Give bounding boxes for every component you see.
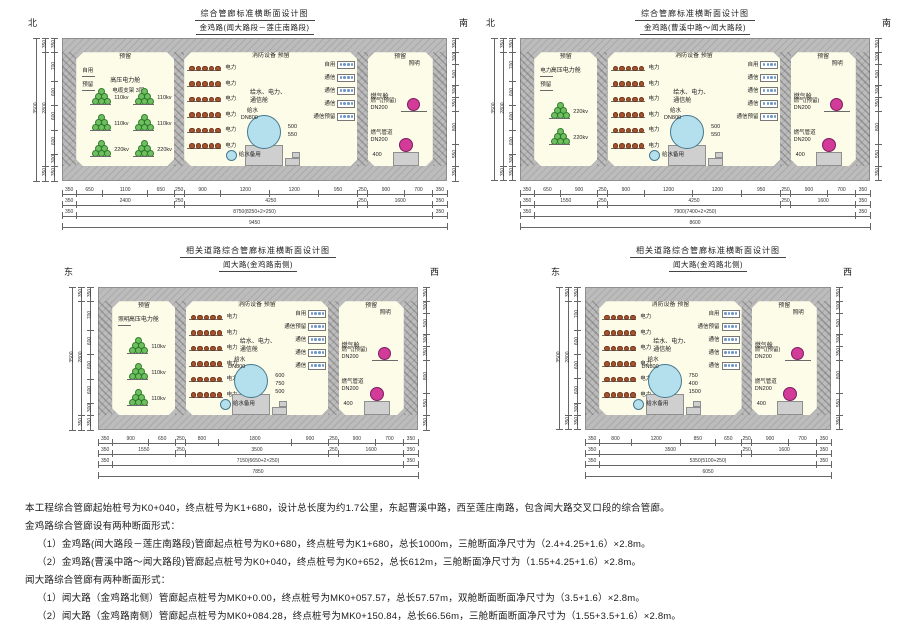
- power-cable-icon: [604, 392, 610, 398]
- dim-value: 350: [585, 447, 599, 453]
- comm-cable-icon: [735, 325, 738, 328]
- power-cable-icon: [215, 81, 221, 87]
- cable-voltage-label: 110kv: [151, 370, 165, 377]
- water-spare-label: 给水备用: [662, 152, 684, 159]
- dim-value: 250: [328, 436, 338, 442]
- dim-line: [62, 227, 447, 228]
- comm-cable-icon: [340, 115, 343, 118]
- dim-tick: [870, 190, 871, 197]
- dim-value: 2800: [78, 344, 84, 370]
- dim-vtick: [491, 38, 498, 39]
- power-cable-icon: [197, 346, 203, 352]
- comm-cable-icon: [735, 364, 738, 367]
- dim-vtick: [42, 52, 49, 53]
- cabin-name-label: 通信舱: [653, 347, 671, 355]
- cabin-hv: 预留照明高压电力舱110kv110kv110kv: [112, 301, 175, 415]
- dim-row: 3507150(6650+2×250)350: [98, 457, 418, 467]
- maintenance-step: [686, 407, 701, 415]
- dim-tick: [831, 472, 832, 479]
- dim-tick: [831, 450, 832, 457]
- gas-shelf-bracket: [401, 111, 427, 112]
- cabin-reserved-label: 预留: [76, 54, 174, 62]
- dim-line: [520, 205, 870, 206]
- dim-vtick: [875, 180, 882, 181]
- gas-pipe-plinth: [364, 401, 390, 415]
- notes-section: 本工程综合管廊起始桩号为K0+040，终点桩号为K1+680，设计总长度为约1.…: [25, 500, 895, 626]
- dim-line: [98, 465, 418, 466]
- compass-north-label: 北: [486, 16, 495, 29]
- comm-cable-icon: [347, 89, 350, 92]
- comm-tray-icon: [722, 310, 740, 318]
- dim-vtick: [491, 180, 498, 181]
- comm-tray-icon: [308, 323, 326, 331]
- water-main-label: 给水: [205, 357, 245, 364]
- dim-value: 2800: [565, 344, 571, 370]
- note-line: （1）闻大路（金鸡路北侧）管廊起点桩号为MK0+0.00，终点桩号为MK0+05…: [25, 590, 895, 608]
- shelf-bracket: [540, 76, 553, 77]
- gas-pipe-plinth: [816, 152, 842, 166]
- comm-cable-icon: [770, 102, 773, 105]
- gas-reserved-label: DN200: [371, 105, 388, 112]
- power-cable-icon: [624, 392, 630, 398]
- note-line: （2）闻大路（金鸡路南侧）管廊起点桩号为MK0+084.28，终点桩号为MK0+…: [25, 608, 895, 626]
- dim-value: 600: [574, 328, 580, 354]
- power-cable-icon: [209, 81, 215, 87]
- dim-value: 900: [112, 436, 149, 442]
- comm-cable-icon: [318, 338, 321, 341]
- dim-value: 350: [817, 447, 831, 453]
- dim-tick: [447, 201, 448, 208]
- comm-cable-label: 自用: [732, 62, 758, 69]
- cable-bracket: [133, 156, 154, 157]
- gas-shelf-bracket: [372, 360, 398, 361]
- water-spare-pipe: [220, 399, 231, 410]
- compass-west-label: 西: [843, 265, 852, 278]
- compass-west-label: 西: [430, 265, 439, 278]
- comm-tray-icon: [760, 61, 778, 69]
- inner-dim-value: 500: [275, 389, 284, 396]
- power-cable-icon: [202, 128, 208, 134]
- dim-value: 350: [98, 458, 112, 464]
- comm-cable-label: 自用: [309, 62, 335, 69]
- gas-main-pipe: [783, 387, 797, 401]
- cabin-name-label: 给水、电力、: [653, 339, 689, 347]
- comm-cable-icon: [314, 351, 317, 354]
- tunnel-wall: [856, 52, 870, 166]
- comm-cable-label: 通信: [732, 88, 758, 95]
- cabin-util: 消防设备 预留电力电力电力电力电力电力给水、电力、通信舱自用通信预留通信通信通信…: [599, 301, 741, 415]
- comm-tray-icon: [760, 74, 778, 82]
- power-cable-icon: [202, 66, 208, 72]
- dim-value: 1600: [791, 198, 856, 204]
- power-cable-icon: [611, 361, 617, 367]
- comm-tray-icon: [722, 362, 740, 370]
- cabin-name-label: 给水、电力、: [673, 90, 709, 98]
- compass-south-label: 南: [459, 16, 468, 29]
- cabin-name-label: 高压电力舱: [112, 317, 175, 325]
- power-cable-label: 电力: [649, 127, 660, 134]
- power-cable-icon: [619, 97, 625, 103]
- comm-cable-label: 通信: [694, 337, 720, 344]
- comm-cable-icon: [731, 312, 734, 315]
- dim-vtick: [42, 181, 49, 182]
- comm-cable-icon: [731, 351, 734, 354]
- water-main-label: DN800: [205, 364, 245, 371]
- gas-main-label: 燃气管道: [371, 130, 393, 137]
- dim-vtick: [836, 429, 843, 430]
- power-cable-icon: [189, 128, 195, 134]
- comm-cable-icon: [770, 89, 773, 92]
- comm-tray-icon: [722, 336, 740, 344]
- dim-line: [98, 443, 418, 444]
- dim-line: [98, 454, 418, 455]
- power-cable-icon: [210, 315, 216, 321]
- dim-vtick: [452, 111, 459, 112]
- power-cable-icon: [197, 330, 203, 336]
- comm-cable-icon: [770, 76, 773, 79]
- comm-cable-icon: [763, 76, 766, 79]
- power-cable-icon: [202, 143, 208, 149]
- power-cable-icon: [191, 392, 197, 398]
- dim-value: 850: [681, 436, 716, 442]
- dim-vtick: [500, 180, 507, 181]
- power-cable-icon: [197, 315, 203, 321]
- comm-tray-icon: [722, 323, 740, 331]
- dim-value: 350: [520, 198, 534, 204]
- dim-value: 250: [597, 198, 607, 204]
- power-cable-label: 电力: [225, 143, 236, 150]
- dim-row: 7850: [98, 468, 418, 478]
- maintenance-step: [272, 407, 287, 415]
- dim-row: 6050: [585, 468, 831, 478]
- dim-value: 900: [368, 187, 405, 193]
- power-cable-icon: [209, 143, 215, 149]
- dim-tick: [447, 190, 448, 197]
- comm-cable-icon: [728, 351, 731, 354]
- dim-value: 800: [452, 114, 458, 140]
- dim-vtick: [78, 301, 85, 302]
- power-cable-icon: [632, 97, 638, 103]
- dim-row: 3507900(7400+2×250)350: [520, 208, 870, 218]
- dim-value: 7850: [98, 469, 418, 475]
- dim-value: 250: [780, 198, 790, 204]
- power-cable-icon: [630, 330, 636, 336]
- dim-value: 600: [87, 352, 93, 378]
- power-cable-icon: [619, 112, 625, 118]
- power-cable-icon: [604, 330, 610, 336]
- gas-reserved-label: DN200: [794, 105, 811, 112]
- comm-cable-icon: [763, 115, 766, 118]
- power-cable-label: 电力: [640, 345, 651, 352]
- dim-value: 250: [357, 187, 367, 193]
- tunnel-wall: [404, 301, 418, 415]
- gas-reserved-label: 燃气(预留): [755, 347, 781, 354]
- comm-cable-icon: [311, 325, 314, 328]
- dim-tick: [831, 439, 832, 446]
- drawing-canvas: 预留电力预留高压电力舱220kv220kv消防设备 预留电力电力电力电力电力电力…: [495, 8, 905, 244]
- dim-value: 3500: [491, 95, 497, 121]
- cable-bracket: [90, 156, 111, 157]
- dim-value: 350: [62, 187, 76, 193]
- power-cable-icon: [202, 81, 208, 87]
- drawing-canvas: 预留照明高压电力舱110kv110kv110kv消防设备 预留电力电力电力电力电…: [60, 245, 500, 493]
- gas-reserved-pipe: [791, 347, 804, 360]
- comm-cable-icon: [347, 63, 350, 66]
- cable-voltage-label: 220kv: [157, 147, 172, 154]
- power-cable-label: 电力: [649, 81, 660, 88]
- note-line: （2）金鸡路(曹溪中路～闻大路段)管廊起点桩号为K0+040，终点桩号为K0+6…: [25, 554, 895, 572]
- cabin-gas: 预留照明燃气舱燃气(预留)DN200燃气管道DN200400: [752, 301, 817, 415]
- power-cable-icon: [626, 112, 632, 118]
- dim-value: 3500: [69, 344, 75, 370]
- cross-section-diagram-4: 相关道路综合管廊标准横断面设计图 闻大路(金鸡路北侧) 东 西 消防设备 预留电…: [545, 245, 905, 493]
- comm-cable-icon: [322, 312, 325, 315]
- power-cable-icon: [197, 361, 203, 367]
- dim-vtick: [574, 429, 581, 430]
- dim-value: 1200: [693, 187, 742, 193]
- comm-cable-icon: [351, 115, 354, 118]
- dim-row: 3508001200850650250900700350: [585, 435, 831, 445]
- dim-value: 3500: [556, 344, 562, 370]
- dim-value: 350: [98, 447, 112, 453]
- cabin-hv: 预留自用预留高压电力舱电缆支架 3层110kv110kv110kv110kv22…: [76, 52, 174, 166]
- comm-cable-icon: [322, 364, 325, 367]
- dim-vtick: [509, 180, 516, 181]
- note-line: 本工程综合管廊起始桩号为K0+040，终点桩号为K1+680，设计总长度为约1.…: [25, 500, 895, 518]
- lighting-label: 照明: [832, 61, 843, 68]
- dim-vtick: [565, 429, 572, 430]
- gas-pipe-plinth: [393, 152, 419, 166]
- dim-value: 900: [561, 187, 598, 193]
- dim-value: 250: [175, 447, 185, 453]
- tunnel-wall: [742, 301, 752, 415]
- comm-cable-icon: [774, 115, 777, 118]
- comm-cable-label: 通信: [732, 101, 758, 108]
- dim-value: 6050: [585, 469, 831, 475]
- dim-vtick: [500, 52, 507, 53]
- dim-value: 1200: [221, 187, 270, 193]
- comm-cable-icon: [311, 312, 314, 315]
- power-cable-icon: [626, 81, 632, 87]
- cable-voltage-label: 110kv: [114, 95, 128, 102]
- power-cable-icon: [210, 377, 216, 383]
- dim-value: 800: [875, 114, 881, 140]
- diagram-subtitle: 闻大路(金鸡路南侧): [219, 259, 297, 272]
- tunnel-wall: [357, 52, 367, 166]
- dim-value: 1550: [534, 198, 597, 204]
- cable-bracket: [127, 353, 148, 354]
- gas-reserved-label: DN200: [755, 354, 772, 361]
- maintenance-step: [715, 152, 723, 158]
- cabin-reserved-label: 预留: [752, 303, 817, 311]
- comm-cable-label: 通信: [280, 363, 306, 370]
- comm-cable-label: 通信: [309, 101, 335, 108]
- dim-value: 650: [149, 436, 175, 442]
- dim-line: [520, 194, 870, 195]
- dim-vtick: [423, 430, 430, 431]
- dim-line: [585, 454, 831, 455]
- diagram-title-block: 相关道路综合管廊标准横断面设计图 闻大路(金鸡路南侧): [118, 245, 398, 272]
- comm-cable-icon: [311, 364, 314, 367]
- comm-tray-icon: [308, 362, 326, 370]
- dim-line: [585, 465, 831, 466]
- dim-value: 800: [186, 436, 219, 442]
- inner-dim-value: 400: [689, 381, 698, 388]
- comm-cable-icon: [343, 76, 346, 79]
- dim-value: 250: [780, 187, 790, 193]
- dim-tick: [447, 212, 448, 219]
- tunnel-wall: [520, 52, 534, 166]
- lighting-label: 照明: [380, 310, 391, 317]
- dim-value: 4250: [608, 198, 781, 204]
- dim-value: 650: [534, 187, 560, 193]
- gas-shelf-bracket: [785, 360, 811, 361]
- water-spare-label: 给水备用: [239, 152, 261, 159]
- gas-main-label: DN200: [371, 137, 388, 144]
- power-cable-icon: [632, 128, 638, 134]
- compass-east-label: 东: [64, 265, 73, 278]
- comm-tray-icon: [337, 61, 355, 69]
- dim-tick: [447, 223, 448, 230]
- gas-main-label: DN200: [755, 386, 772, 393]
- power-cable-icon: [613, 81, 619, 87]
- comm-cable-icon: [774, 102, 777, 105]
- cable-voltage-label: 220kv: [114, 147, 129, 154]
- gas-main-label: DN200: [342, 386, 359, 393]
- water-spare-label: 给水备用: [233, 401, 255, 408]
- dim-value: 350: [98, 436, 112, 442]
- dim-value: 800: [836, 362, 842, 388]
- dim-value: 350: [856, 198, 870, 204]
- diagram-title: 相关道路综合管廊标准横断面设计图: [180, 245, 336, 258]
- dim-value: 350: [433, 209, 447, 215]
- fire-equipment-label: 消防设备 预留: [184, 53, 357, 61]
- water-spare-pipe: [649, 150, 660, 161]
- comm-cable-label: 自用: [280, 311, 306, 318]
- gas-dim-value: 400: [757, 401, 766, 408]
- cabin-name-label: 给水、电力、: [240, 339, 276, 347]
- dim-value: 900: [292, 436, 329, 442]
- cabin-gas: 预留照明燃气舱燃气(预留)DN200燃气管道DN200400: [368, 52, 433, 166]
- dim-value: 350: [856, 209, 870, 215]
- comm-tray-icon: [760, 113, 778, 121]
- comm-cable-icon: [731, 338, 734, 341]
- cross-section-diagram-2: 综合管廊标准横断面设计图 金鸡路(曹溪中路～闻大路段) 北 南 预留电力预留高压…: [495, 8, 905, 244]
- dim-tick: [418, 461, 419, 468]
- dim-row: 3508750(8250+2×250)350: [62, 208, 447, 218]
- comm-tray-icon: [337, 113, 355, 121]
- power-cable-icon: [217, 392, 223, 398]
- power-cable-label: 电力: [640, 330, 651, 337]
- power-cable-icon: [613, 143, 619, 149]
- lighting-label: 照明: [409, 61, 420, 68]
- dim-vtick: [556, 287, 563, 288]
- dim-value: 350: [404, 458, 418, 464]
- cable-voltage-label: 110kv: [114, 121, 128, 128]
- gas-shelf-bracket: [824, 111, 850, 112]
- fire-equipment-label: 消防设备 预留: [186, 302, 329, 310]
- power-cable-icon: [611, 392, 617, 398]
- comm-cable-icon: [763, 63, 766, 66]
- tunnel-wall: [174, 52, 184, 166]
- power-cable-icon: [196, 81, 202, 87]
- dim-value: 5350(5100+250): [599, 458, 817, 464]
- comm-cable-icon: [351, 76, 354, 79]
- comm-cable-label: 通信预留: [732, 114, 758, 121]
- comm-cable-label: 通信预留: [280, 324, 306, 331]
- cabin-gas: 预留照明燃气舱燃气(预留)DN200燃气管道DN200400: [339, 301, 404, 415]
- comm-cable-icon: [735, 338, 738, 341]
- dim-value: 1200: [632, 436, 681, 442]
- power-cable-icon: [619, 128, 625, 134]
- water-main-label: 给水: [218, 108, 258, 115]
- power-cable-label: 电力: [649, 143, 660, 150]
- comm-tray-icon: [722, 349, 740, 357]
- diagram-title-block: 相关道路综合管廊标准横断面设计图 闻大路(金鸡路北侧): [568, 245, 848, 272]
- cabin-gas: 预留照明燃气舱燃气(预留)DN200燃气管道DN200400: [791, 52, 856, 166]
- dim-tick: [418, 472, 419, 479]
- dim-value: 1200: [644, 187, 693, 193]
- dim-value: 1100: [103, 187, 148, 193]
- comm-cable-icon: [343, 89, 346, 92]
- tunnel-wall: [780, 52, 790, 166]
- fire-equipment-label: 消防设备 预留: [608, 53, 781, 61]
- dim-value: 1550: [112, 447, 175, 453]
- dim-row: 350155025042502501600350: [520, 197, 870, 207]
- gas-dim-value: 400: [373, 152, 382, 159]
- tunnel-wall: [585, 301, 599, 415]
- gas-dim-value: 400: [344, 401, 353, 408]
- dim-line: [62, 216, 447, 217]
- comm-cable-icon: [318, 364, 321, 367]
- note-line: 金鸡路综合管廊设有两种断面形式：: [25, 518, 895, 536]
- power-cable-icon: [196, 143, 202, 149]
- comm-cable-icon: [724, 312, 727, 315]
- power-cable-icon: [197, 392, 203, 398]
- water-spare-pipe: [633, 399, 644, 410]
- comm-tray-icon: [308, 310, 326, 318]
- inner-dim-value: 550: [288, 132, 297, 139]
- comm-cable-icon: [731, 325, 734, 328]
- compass-south-label: 南: [882, 16, 891, 29]
- dim-value: 3500: [33, 95, 39, 121]
- dim-value: 1800: [218, 436, 291, 442]
- dim-row: 9450: [62, 219, 447, 229]
- comm-tray-icon: [308, 349, 326, 357]
- inner-dim-value: 1500: [689, 389, 701, 396]
- dim-row: 350155025035002501600350: [98, 446, 418, 456]
- dim-value: 1200: [270, 187, 319, 193]
- dim-value: 350: [817, 458, 831, 464]
- comm-tray-icon: [760, 100, 778, 108]
- dim-value: 7900(7400+2×250): [534, 209, 856, 215]
- comm-cable-icon: [318, 325, 321, 328]
- comm-cable-label: 通信: [732, 75, 758, 82]
- comm-cable-icon: [314, 325, 317, 328]
- dim-line: [585, 443, 831, 444]
- dim-value: 900: [339, 436, 376, 442]
- dim-value: 350: [404, 447, 418, 453]
- power-cable-icon: [617, 346, 623, 352]
- power-cable-icon: [639, 81, 645, 87]
- water-spare-pipe: [226, 150, 237, 161]
- diagram-title: 相关道路综合管廊标准横断面设计图: [630, 245, 786, 258]
- cabin-name-label: 通信舱: [240, 347, 258, 355]
- gas-main-label: 燃气管道: [755, 379, 777, 386]
- comm-cable-icon: [774, 76, 777, 79]
- comm-cable-icon: [767, 115, 770, 118]
- comm-cable-icon: [767, 102, 770, 105]
